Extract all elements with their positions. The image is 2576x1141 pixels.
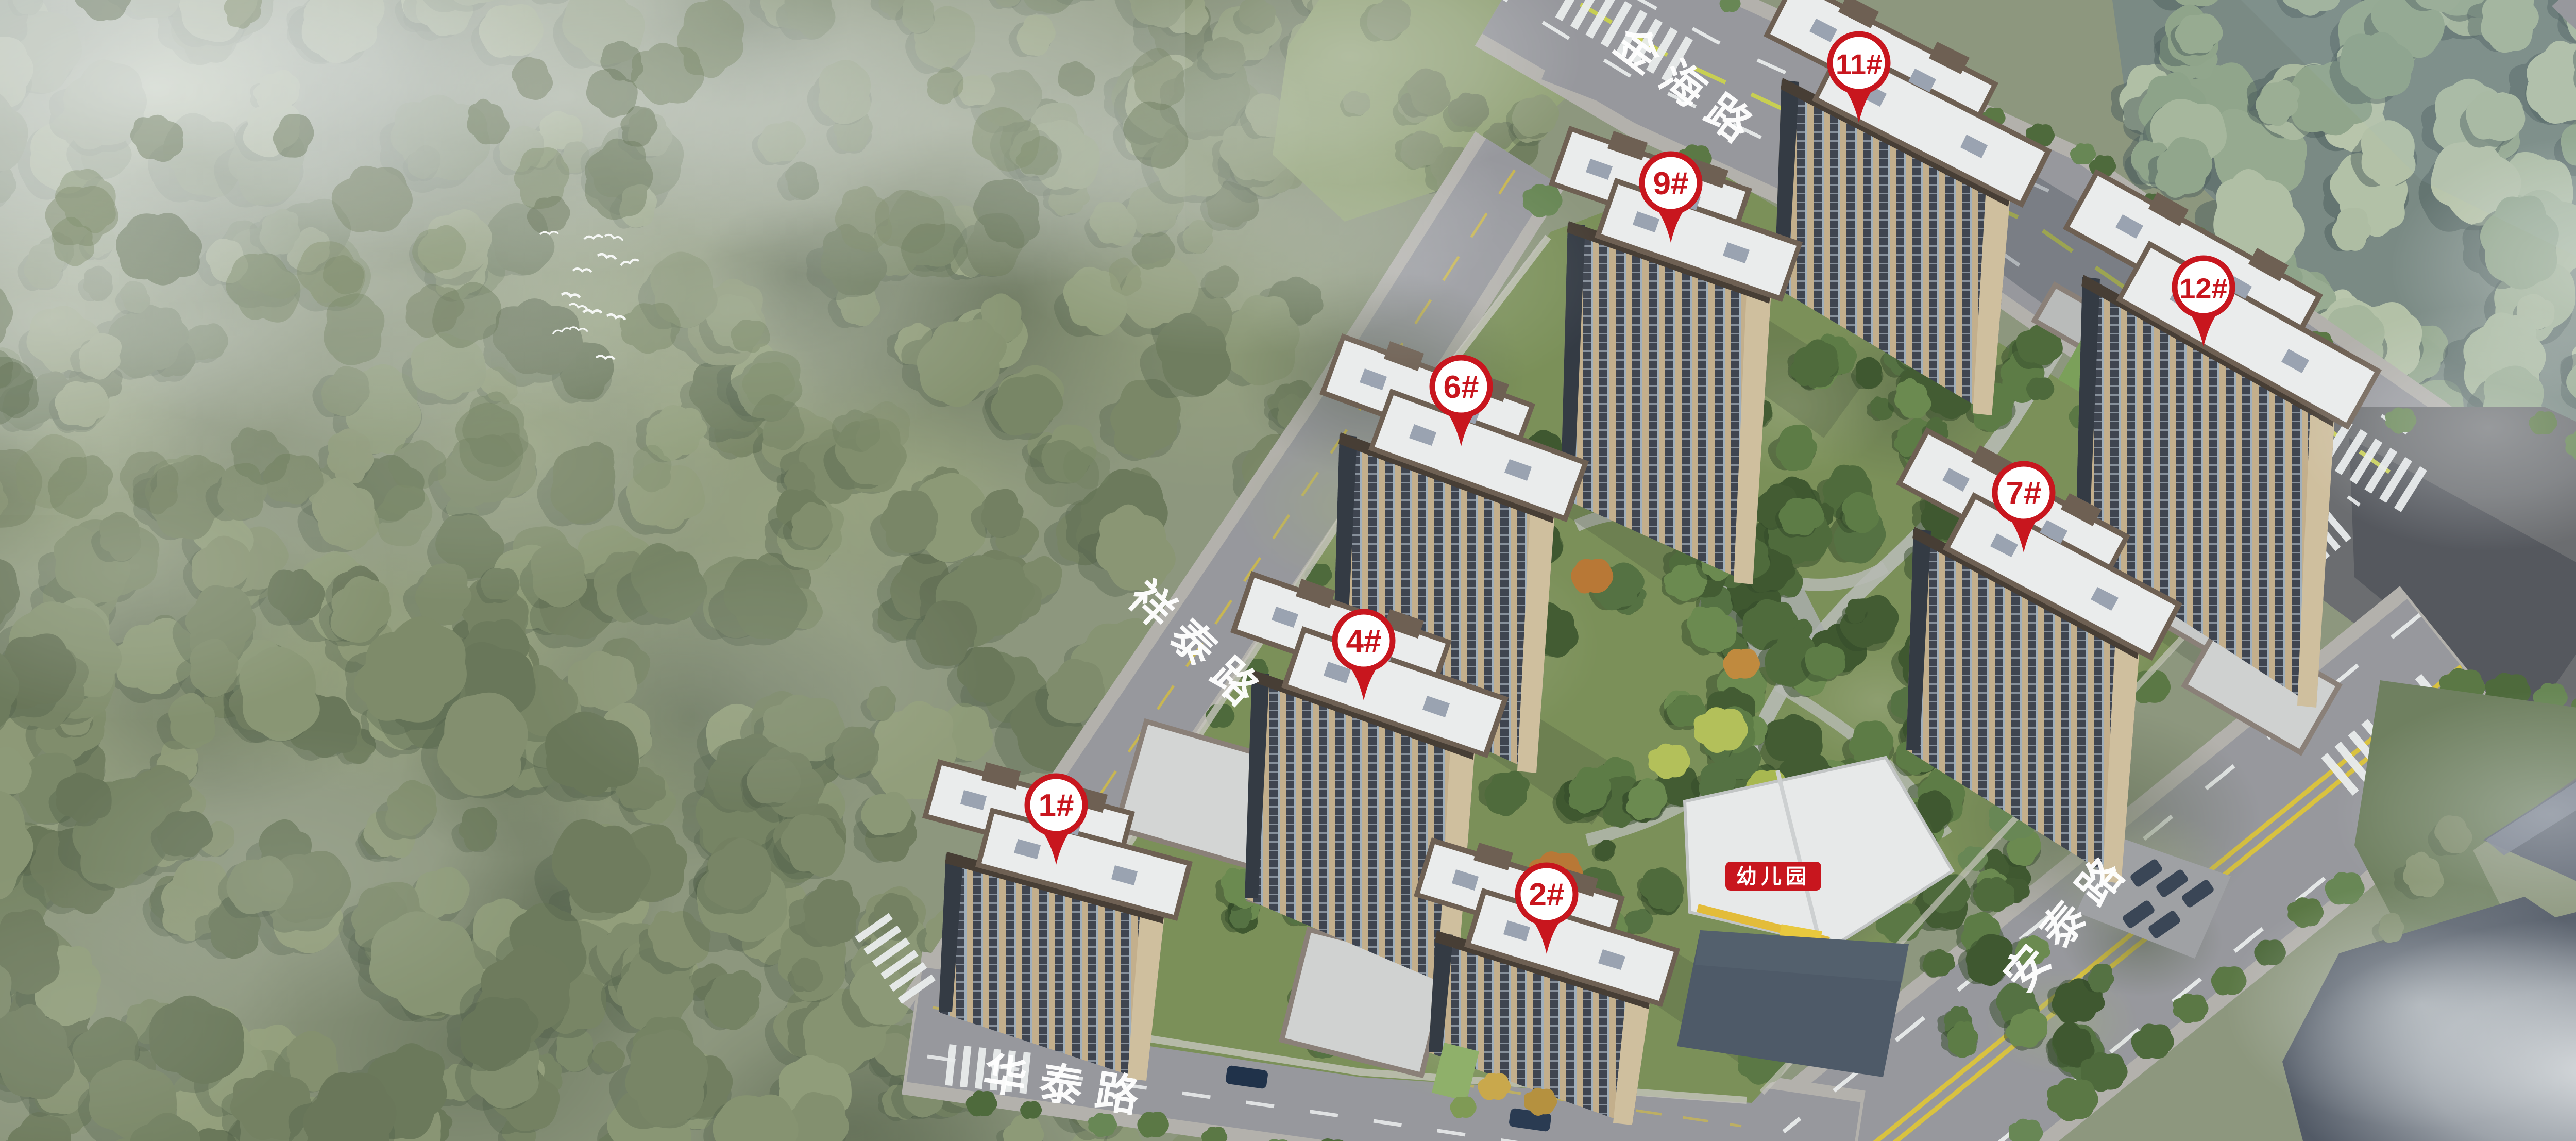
svg-text:4#: 4# — [1346, 624, 1382, 659]
svg-text:11#: 11# — [1836, 48, 1882, 80]
svg-text:12#: 12# — [2179, 272, 2227, 305]
svg-text:6#: 6# — [1444, 370, 1479, 405]
svg-text:幼儿园: 幼儿园 — [1736, 865, 1810, 888]
svg-text:1#: 1# — [1039, 788, 1074, 824]
svg-text:9#: 9# — [1653, 166, 1689, 202]
svg-text:2#: 2# — [1529, 877, 1565, 913]
svg-text:7#: 7# — [2006, 476, 2042, 511]
